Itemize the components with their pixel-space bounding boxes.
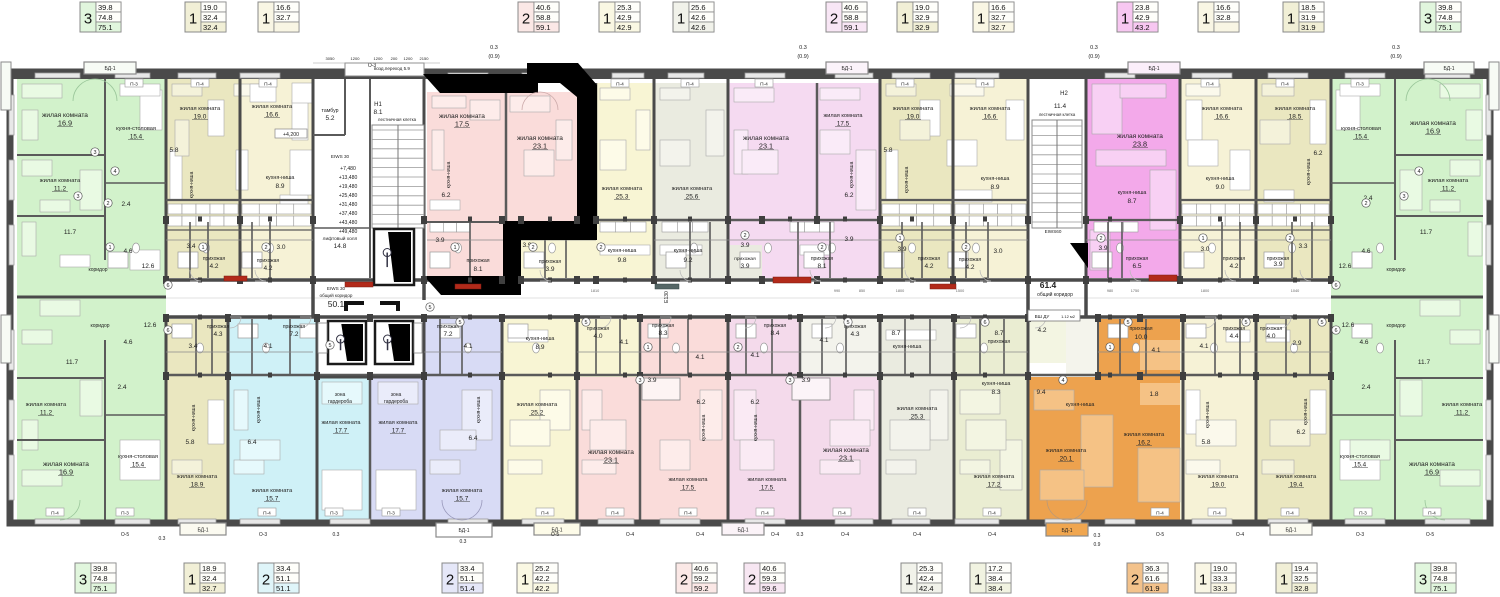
svg-text:лифтовый холл: лифтовый холл bbox=[323, 235, 358, 242]
svg-text:61.6: 61.6 bbox=[1145, 574, 1160, 583]
svg-text:990: 990 bbox=[834, 289, 840, 293]
svg-text:75.1: 75.1 bbox=[93, 584, 108, 593]
svg-text:прихожая: прихожая bbox=[203, 256, 226, 262]
svg-text:6: 6 bbox=[1334, 328, 1337, 334]
svg-text:жилая комната: жилая комната bbox=[748, 477, 788, 483]
svg-text:38.4: 38.4 bbox=[988, 584, 1003, 593]
svg-text:0.3: 0.3 bbox=[460, 539, 467, 545]
svg-text:жилая комната: жилая комната bbox=[442, 488, 483, 494]
svg-text:4.1: 4.1 bbox=[750, 352, 759, 359]
svg-text:1: 1 bbox=[977, 11, 985, 28]
svg-text:О-4: О-4 bbox=[988, 532, 997, 538]
svg-text:2: 2 bbox=[743, 233, 746, 239]
svg-text:гардероба: гардероба bbox=[328, 399, 352, 405]
svg-text:кухня-ниша: кухня-ниша bbox=[981, 176, 1010, 182]
svg-text:коридор: коридор bbox=[1386, 267, 1405, 273]
svg-text:коридор: коридор bbox=[88, 267, 107, 273]
svg-text:25.3: 25.3 bbox=[919, 564, 934, 573]
svg-text:общий коридор: общий коридор bbox=[320, 292, 353, 298]
svg-text:12.6: 12.6 bbox=[1339, 263, 1352, 270]
svg-text:П-4: П-4 bbox=[1428, 510, 1436, 516]
svg-text:74.8: 74.8 bbox=[1438, 13, 1453, 22]
svg-text:1: 1 bbox=[1199, 572, 1207, 589]
svg-text:4.2: 4.2 bbox=[209, 263, 218, 270]
svg-text:3.4: 3.4 bbox=[188, 343, 197, 350]
svg-text:П-4: П-4 bbox=[686, 81, 694, 87]
svg-text:1: 1 bbox=[1121, 11, 1129, 28]
svg-text:О-5: О-5 bbox=[551, 532, 560, 538]
svg-text:Е130: Е130 bbox=[664, 291, 670, 303]
svg-text:(0.9): (0.9) bbox=[1088, 54, 1099, 60]
svg-text:17.2: 17.2 bbox=[988, 564, 1003, 573]
svg-text:18.5: 18.5 bbox=[1301, 3, 1316, 12]
svg-text:18.9: 18.9 bbox=[202, 564, 217, 573]
svg-text:П-3: П-3 bbox=[330, 510, 338, 516]
svg-text:7.2: 7.2 bbox=[289, 331, 298, 338]
svg-text:+13,480: +13,480 bbox=[339, 175, 358, 181]
svg-text:8.7: 8.7 bbox=[891, 330, 900, 337]
svg-text:32.7: 32.7 bbox=[991, 23, 1006, 32]
svg-text:3: 3 bbox=[638, 378, 641, 384]
svg-text:4.1: 4.1 bbox=[1199, 343, 1208, 350]
svg-text:4.0: 4.0 bbox=[593, 333, 602, 340]
svg-text:кухня-ниша: кухня-ниша bbox=[526, 336, 555, 342]
svg-text:2: 2 bbox=[522, 11, 530, 28]
svg-text:кухня-ниша: кухня-ниша bbox=[701, 414, 707, 441]
svg-text:1800: 1800 bbox=[896, 289, 904, 293]
svg-text:прихожая: прихожая bbox=[959, 257, 982, 263]
svg-text:40.6: 40.6 bbox=[694, 564, 709, 573]
svg-text:лестничная клетка: лестничная клетка bbox=[1039, 112, 1076, 117]
svg-text:58.8: 58.8 bbox=[536, 13, 551, 22]
svg-text:О-4: О-4 bbox=[696, 532, 705, 538]
svg-text:EIWS60: EIWS60 bbox=[1045, 229, 1062, 234]
svg-text:5: 5 bbox=[1126, 320, 1129, 326]
svg-text:О-3: О-3 bbox=[368, 63, 377, 69]
svg-text:32.4: 32.4 bbox=[203, 13, 218, 22]
svg-text:40.6: 40.6 bbox=[844, 3, 859, 12]
svg-text:жилая комната: жилая комната bbox=[897, 406, 938, 412]
svg-text:31.9: 31.9 bbox=[1301, 23, 1316, 32]
svg-text:11.7: 11.7 bbox=[66, 359, 79, 366]
svg-text:кухня-ниша: кухня-ниша bbox=[446, 161, 452, 188]
svg-text:+37,480: +37,480 bbox=[339, 211, 358, 217]
svg-text:51.1: 51.1 bbox=[460, 574, 475, 583]
svg-text:17.5: 17.5 bbox=[455, 120, 469, 129]
svg-text:1: 1 bbox=[262, 11, 270, 28]
svg-text:1: 1 bbox=[974, 572, 982, 589]
svg-text:33.4: 33.4 bbox=[460, 564, 475, 573]
svg-text:3: 3 bbox=[84, 11, 92, 28]
svg-text:23.1: 23.1 bbox=[604, 456, 618, 465]
svg-text:кухня-ниша: кухня-ниша bbox=[674, 248, 703, 254]
svg-text:40.6: 40.6 bbox=[536, 3, 551, 12]
svg-text:4.2: 4.2 bbox=[924, 263, 933, 270]
svg-text:2: 2 bbox=[680, 572, 688, 589]
svg-text:1: 1 bbox=[1280, 572, 1288, 589]
svg-text:7.2: 7.2 bbox=[443, 331, 452, 338]
svg-text:4.1: 4.1 bbox=[619, 339, 628, 346]
svg-text:16.9: 16.9 bbox=[58, 119, 72, 128]
svg-text:1500: 1500 bbox=[956, 289, 964, 293]
svg-text:О-3: О-3 bbox=[259, 532, 268, 538]
svg-text:коридор: коридор bbox=[1386, 323, 1405, 329]
svg-text:1: 1 bbox=[453, 245, 456, 251]
svg-text:4.6: 4.6 bbox=[123, 248, 132, 255]
svg-text:23.8: 23.8 bbox=[1135, 3, 1150, 12]
svg-text:12.6: 12.6 bbox=[142, 263, 155, 270]
svg-text:3.9: 3.9 bbox=[545, 266, 554, 273]
svg-text:прихожая: прихожая bbox=[1223, 326, 1246, 332]
svg-text:8.9: 8.9 bbox=[990, 184, 999, 191]
svg-text:16.6: 16.6 bbox=[276, 3, 291, 12]
svg-text:(0.9): (0.9) bbox=[1390, 54, 1401, 60]
svg-text:коридор: коридор bbox=[90, 323, 109, 329]
svg-text:1810: 1810 bbox=[591, 289, 599, 293]
svg-text:П-4: П-4 bbox=[541, 510, 549, 516]
svg-text:39.8: 39.8 bbox=[98, 3, 113, 12]
svg-text:59.2: 59.2 bbox=[694, 574, 709, 583]
svg-text:кухня-ниша: кухня-ниша bbox=[189, 171, 195, 198]
svg-text:П-4: П-4 bbox=[981, 81, 989, 87]
svg-text:50.1: 50.1 bbox=[328, 299, 345, 309]
svg-text:3: 3 bbox=[1419, 572, 1427, 589]
svg-text:11.4: 11.4 bbox=[1054, 103, 1067, 110]
svg-text:59.1: 59.1 bbox=[844, 23, 859, 32]
svg-text:H1: H1 bbox=[374, 102, 382, 108]
svg-text:кухня-ниша: кухня-ниша bbox=[1118, 190, 1147, 196]
svg-text:8.9: 8.9 bbox=[275, 183, 284, 190]
svg-text:жилая комната: жилая комната bbox=[1046, 448, 1087, 454]
svg-text:5.8: 5.8 bbox=[883, 147, 892, 154]
svg-text:лестничная клетка: лестничная клетка bbox=[378, 117, 417, 122]
svg-text:жилая комната: жилая комната bbox=[252, 488, 293, 494]
svg-text:12.6: 12.6 bbox=[144, 322, 157, 329]
svg-text:3.9: 3.9 bbox=[1098, 245, 1107, 252]
svg-text:5: 5 bbox=[458, 320, 461, 326]
svg-text:EIWS 30: EIWS 30 bbox=[327, 286, 346, 291]
svg-text:2.4: 2.4 bbox=[121, 201, 130, 208]
svg-text:1: 1 bbox=[1287, 11, 1295, 28]
svg-text:П-3: П-3 bbox=[130, 81, 138, 87]
svg-text:58.8: 58.8 bbox=[844, 13, 859, 22]
svg-text:прихожая: прихожая bbox=[257, 258, 280, 264]
svg-text:59.6: 59.6 bbox=[762, 584, 777, 593]
svg-text:2.9: 2.9 bbox=[1292, 340, 1301, 347]
svg-text:1200: 1200 bbox=[351, 56, 361, 61]
svg-text:2: 2 bbox=[599, 245, 602, 251]
svg-text:кухня-ниша: кухня-ниша bbox=[266, 175, 295, 181]
svg-text:О-4: О-4 bbox=[771, 532, 780, 538]
svg-text:4.1: 4.1 bbox=[819, 337, 828, 344]
svg-text:42.4: 42.4 bbox=[919, 574, 934, 583]
svg-text:П-4: П-4 bbox=[1281, 81, 1289, 87]
svg-text:8.4: 8.4 bbox=[770, 330, 779, 337]
svg-text:прихожая: прихожая bbox=[734, 257, 756, 262]
svg-text:32.8: 32.8 bbox=[1294, 584, 1309, 593]
svg-text:3.0: 3.0 bbox=[276, 244, 285, 251]
svg-text:12.6: 12.6 bbox=[1342, 322, 1355, 329]
svg-text:прихожая: прихожая bbox=[207, 324, 230, 330]
svg-text:кухня-ниша: кухня-ниша bbox=[1206, 176, 1235, 182]
svg-text:П-4: П-4 bbox=[611, 510, 619, 516]
svg-text:6.2: 6.2 bbox=[1296, 429, 1305, 436]
svg-text:кухня-ниша: кухня-ниша bbox=[753, 414, 759, 441]
svg-text:39.8: 39.8 bbox=[1438, 3, 1453, 12]
svg-text:61.9: 61.9 bbox=[1145, 584, 1160, 593]
svg-text:кухня-столовая: кухня-столовая bbox=[118, 454, 158, 460]
svg-text:прихожая: прихожая bbox=[764, 323, 787, 329]
svg-text:+4,200: +4,200 bbox=[283, 132, 299, 138]
svg-text:жилая комната: жилая комната bbox=[252, 104, 293, 110]
svg-text:1: 1 bbox=[901, 11, 909, 28]
svg-text:5: 5 bbox=[584, 320, 587, 326]
svg-text:О-4: О-4 bbox=[841, 532, 850, 538]
svg-text:1800: 1800 bbox=[1201, 289, 1209, 293]
svg-text:зона: зона bbox=[391, 392, 402, 398]
svg-text:1750: 1750 bbox=[1131, 289, 1139, 293]
svg-text:2: 2 bbox=[262, 572, 270, 589]
svg-text:3.9: 3.9 bbox=[897, 246, 906, 253]
svg-text:4.3: 4.3 bbox=[850, 331, 859, 338]
svg-text:2.4: 2.4 bbox=[1361, 384, 1370, 391]
svg-text:жилая комната: жилая комната bbox=[1275, 106, 1316, 112]
svg-text:П-4: П-4 bbox=[196, 81, 204, 87]
svg-text:О-5: О-5 bbox=[121, 532, 130, 538]
svg-text:1: 1 bbox=[677, 11, 685, 28]
svg-text:+7,480: +7,480 bbox=[340, 166, 356, 172]
svg-text:59.2: 59.2 bbox=[694, 584, 709, 593]
svg-text:16.9: 16.9 bbox=[1425, 468, 1439, 477]
svg-text:П-4: П-4 bbox=[684, 510, 692, 516]
svg-text:1: 1 bbox=[189, 11, 197, 28]
svg-text:5: 5 bbox=[1244, 320, 1247, 326]
svg-text:жилая комната: жилая комната bbox=[893, 106, 934, 112]
svg-text:2: 2 bbox=[964, 245, 967, 251]
svg-text:3: 3 bbox=[76, 194, 79, 200]
svg-text:75.1: 75.1 bbox=[1433, 584, 1448, 593]
svg-text:2: 2 bbox=[446, 572, 454, 589]
svg-text:П-4: П-4 bbox=[263, 510, 271, 516]
svg-text:4.6: 4.6 bbox=[1359, 339, 1368, 346]
svg-text:1: 1 bbox=[1108, 345, 1111, 351]
svg-text:О-5: О-5 bbox=[1156, 532, 1165, 538]
svg-text:6.2: 6.2 bbox=[844, 192, 853, 199]
svg-text:кухня-ниша: кухня-ниша bbox=[256, 396, 262, 423]
svg-text:кухня-столовая: кухня-столовая bbox=[1341, 126, 1381, 132]
svg-text:32.5: 32.5 bbox=[1294, 574, 1309, 583]
svg-text:200: 200 bbox=[391, 56, 398, 61]
svg-text:3.9: 3.9 bbox=[647, 377, 656, 384]
svg-text:8.3: 8.3 bbox=[658, 330, 667, 337]
svg-text:жилая комната: жилая комната bbox=[974, 474, 1015, 480]
svg-text:32.7: 32.7 bbox=[991, 13, 1006, 22]
svg-text:5.2: 5.2 bbox=[325, 115, 334, 122]
svg-text:кухня-ниша: кухня-ниша bbox=[904, 166, 910, 193]
svg-text:2: 2 bbox=[830, 11, 838, 28]
svg-text:2: 2 bbox=[1364, 201, 1367, 207]
svg-text:БД-1: БД-1 bbox=[197, 528, 208, 534]
svg-text:П-4: П-4 bbox=[1213, 510, 1221, 516]
svg-text:2: 2 bbox=[264, 245, 267, 251]
svg-text:2: 2 bbox=[820, 245, 823, 251]
svg-text:(0.9): (0.9) bbox=[797, 54, 808, 60]
svg-text:3.9: 3.9 bbox=[801, 377, 810, 384]
svg-text:39.8: 39.8 bbox=[93, 564, 108, 573]
svg-text:П-4: П-4 bbox=[838, 510, 846, 516]
svg-text:74.8: 74.8 bbox=[98, 13, 113, 22]
svg-text:42.2: 42.2 bbox=[535, 584, 550, 593]
svg-text:4.4: 4.4 bbox=[1229, 333, 1238, 340]
svg-text:33.3: 33.3 bbox=[1213, 574, 1228, 583]
svg-text:2: 2 bbox=[736, 345, 739, 351]
svg-text:жилая комната: жилая комната bbox=[517, 402, 558, 408]
svg-text:42.9: 42.9 bbox=[617, 13, 632, 22]
svg-text:0.3: 0.3 bbox=[1090, 45, 1098, 51]
svg-text:3050: 3050 bbox=[326, 56, 336, 61]
svg-text:8.1: 8.1 bbox=[473, 266, 482, 273]
svg-text:75.1: 75.1 bbox=[1438, 23, 1453, 32]
svg-text:6: 6 bbox=[983, 320, 986, 326]
svg-text:8.1: 8.1 bbox=[373, 109, 382, 116]
svg-text:42.4: 42.4 bbox=[919, 584, 934, 593]
svg-text:33.3: 33.3 bbox=[1213, 584, 1228, 593]
svg-text:23.1: 23.1 bbox=[759, 142, 773, 151]
svg-text:возд.переход 5.9: возд.переход 5.9 bbox=[374, 66, 410, 71]
svg-text:прихожая: прихожая bbox=[811, 256, 834, 262]
svg-text:3.0: 3.0 bbox=[1200, 246, 1209, 253]
svg-text:1: 1 bbox=[898, 236, 901, 242]
svg-text:П-3: П-3 bbox=[387, 510, 395, 516]
svg-text:1.8: 1.8 bbox=[1149, 391, 1158, 398]
svg-text:6.2: 6.2 bbox=[750, 399, 759, 406]
svg-text:850: 850 bbox=[859, 289, 865, 293]
svg-text:EIWS 30: EIWS 30 bbox=[331, 154, 350, 159]
svg-text:3.3: 3.3 bbox=[1298, 243, 1307, 250]
svg-text:3.0: 3.0 bbox=[993, 248, 1002, 255]
svg-text:4.2: 4.2 bbox=[1037, 327, 1046, 334]
svg-text:П-4: П-4 bbox=[1286, 510, 1294, 516]
svg-text:тамбур: тамбур bbox=[322, 108, 339, 114]
svg-text:36.3: 36.3 bbox=[1145, 564, 1160, 573]
svg-text:6.4: 6.4 bbox=[468, 435, 477, 442]
svg-text:БД-1: БД-1 bbox=[737, 528, 748, 534]
svg-text:5.8: 5.8 bbox=[169, 147, 178, 154]
svg-text:2150: 2150 bbox=[420, 56, 430, 61]
svg-text:кухня-ниша: кухня-ниша bbox=[476, 396, 482, 423]
svg-text:1: 1 bbox=[905, 572, 913, 589]
svg-text:прихожая: прихожая bbox=[587, 326, 610, 332]
svg-text:прихожая: прихожая bbox=[466, 258, 489, 264]
svg-text:8.1: 8.1 bbox=[817, 263, 826, 270]
svg-text:6: 6 bbox=[1334, 283, 1337, 289]
svg-text:4.2: 4.2 bbox=[1229, 263, 1238, 270]
svg-text:1: 1 bbox=[603, 11, 611, 28]
svg-text:1: 1 bbox=[201, 245, 204, 251]
svg-text:1200: 1200 bbox=[404, 56, 414, 61]
svg-text:4: 4 bbox=[1061, 378, 1064, 384]
svg-text:3: 3 bbox=[79, 572, 87, 589]
svg-text:32.4: 32.4 bbox=[203, 23, 218, 32]
svg-text:4: 4 bbox=[1417, 169, 1420, 175]
svg-text:23.1: 23.1 bbox=[533, 142, 547, 151]
svg-text:гардероба: гардероба bbox=[384, 399, 408, 405]
svg-text:жилая комната: жилая комната bbox=[669, 477, 709, 483]
svg-text:3: 3 bbox=[788, 378, 791, 384]
svg-text:БД-1: БД-1 bbox=[841, 66, 852, 72]
svg-text:1: 1 bbox=[108, 245, 111, 251]
svg-text:кухня-ниша: кухня-ниша bbox=[849, 161, 855, 188]
svg-text:59.3: 59.3 bbox=[762, 574, 777, 583]
svg-text:9.4: 9.4 bbox=[1036, 389, 1045, 396]
svg-text:8.3: 8.3 bbox=[991, 389, 1000, 396]
svg-text:кухня-ниша: кухня-ниша bbox=[982, 381, 1011, 387]
svg-text:кухня-ниша: кухня-ниша bbox=[1306, 158, 1312, 185]
svg-text:10.0: 10.0 bbox=[1135, 334, 1148, 341]
svg-text:42.9: 42.9 bbox=[617, 23, 632, 32]
svg-text:11.7: 11.7 bbox=[1418, 359, 1431, 366]
svg-text:42.9: 42.9 bbox=[1135, 13, 1150, 22]
svg-text:П-4: П-4 bbox=[51, 510, 59, 516]
svg-text:прихожая: прихожая bbox=[918, 256, 941, 262]
svg-text:0.3: 0.3 bbox=[490, 45, 498, 51]
svg-text:0.3: 0.3 bbox=[1392, 45, 1400, 51]
svg-text:74.8: 74.8 bbox=[93, 574, 108, 583]
svg-text:П-4: П-4 bbox=[760, 81, 768, 87]
svg-text:ВШ ДУ: ВШ ДУ bbox=[1035, 314, 1050, 319]
svg-text:жилая комната: жилая комната bbox=[322, 420, 362, 426]
svg-text:прихожая: прихожая bbox=[652, 323, 675, 329]
svg-text:кухня-ниша: кухня-ниша bbox=[1303, 398, 1309, 425]
svg-text:43.2: 43.2 bbox=[1135, 23, 1150, 32]
svg-text:кухня-ниша: кухня-ниша bbox=[893, 344, 922, 350]
svg-text:42.6: 42.6 bbox=[691, 23, 706, 32]
svg-text:32.9: 32.9 bbox=[915, 23, 930, 32]
svg-text:прихожая: прихожая bbox=[1260, 326, 1283, 332]
svg-text:БД-1: БД-1 bbox=[458, 528, 469, 534]
svg-text:кухня-столовая: кухня-столовая bbox=[116, 126, 156, 132]
svg-text:H2: H2 bbox=[1060, 91, 1068, 97]
svg-text:8.7: 8.7 bbox=[1127, 198, 1136, 205]
svg-text:прихожая: прихожая bbox=[1126, 256, 1149, 262]
svg-text:11.7: 11.7 bbox=[1420, 229, 1433, 236]
svg-text:+43,480: +43,480 bbox=[339, 220, 358, 226]
svg-text:1: 1 bbox=[646, 345, 649, 351]
svg-text:14.8: 14.8 bbox=[334, 243, 347, 250]
svg-text:+19,480: +19,480 bbox=[339, 184, 358, 190]
svg-text:зона: зона bbox=[335, 392, 346, 398]
svg-text:общий коридор: общий коридор bbox=[1037, 291, 1073, 298]
svg-text:3: 3 bbox=[1424, 11, 1432, 28]
svg-text:6.2: 6.2 bbox=[696, 399, 705, 406]
svg-text:33.4: 33.4 bbox=[276, 564, 291, 573]
svg-text:16.9: 16.9 bbox=[1426, 127, 1440, 136]
svg-text:980: 980 bbox=[1107, 289, 1113, 293]
svg-text:19.0: 19.0 bbox=[915, 3, 930, 12]
svg-text:кухня-ниша: кухня-ниша bbox=[1066, 402, 1095, 408]
svg-text:О-5: О-5 bbox=[1426, 532, 1435, 538]
svg-text:0.9: 0.9 bbox=[1094, 542, 1101, 548]
svg-text:П-3: П-3 bbox=[1356, 81, 1364, 87]
svg-text:2: 2 bbox=[106, 201, 109, 207]
svg-text:+25,480: +25,480 bbox=[339, 193, 358, 199]
svg-text:32.7: 32.7 bbox=[202, 584, 217, 593]
svg-text:О-4: О-4 bbox=[913, 532, 922, 538]
svg-text:П-3: П-3 bbox=[121, 510, 129, 516]
svg-text:59.1: 59.1 bbox=[536, 23, 551, 32]
svg-text:3: 3 bbox=[1402, 194, 1405, 200]
svg-text:32.9: 32.9 bbox=[915, 13, 930, 22]
